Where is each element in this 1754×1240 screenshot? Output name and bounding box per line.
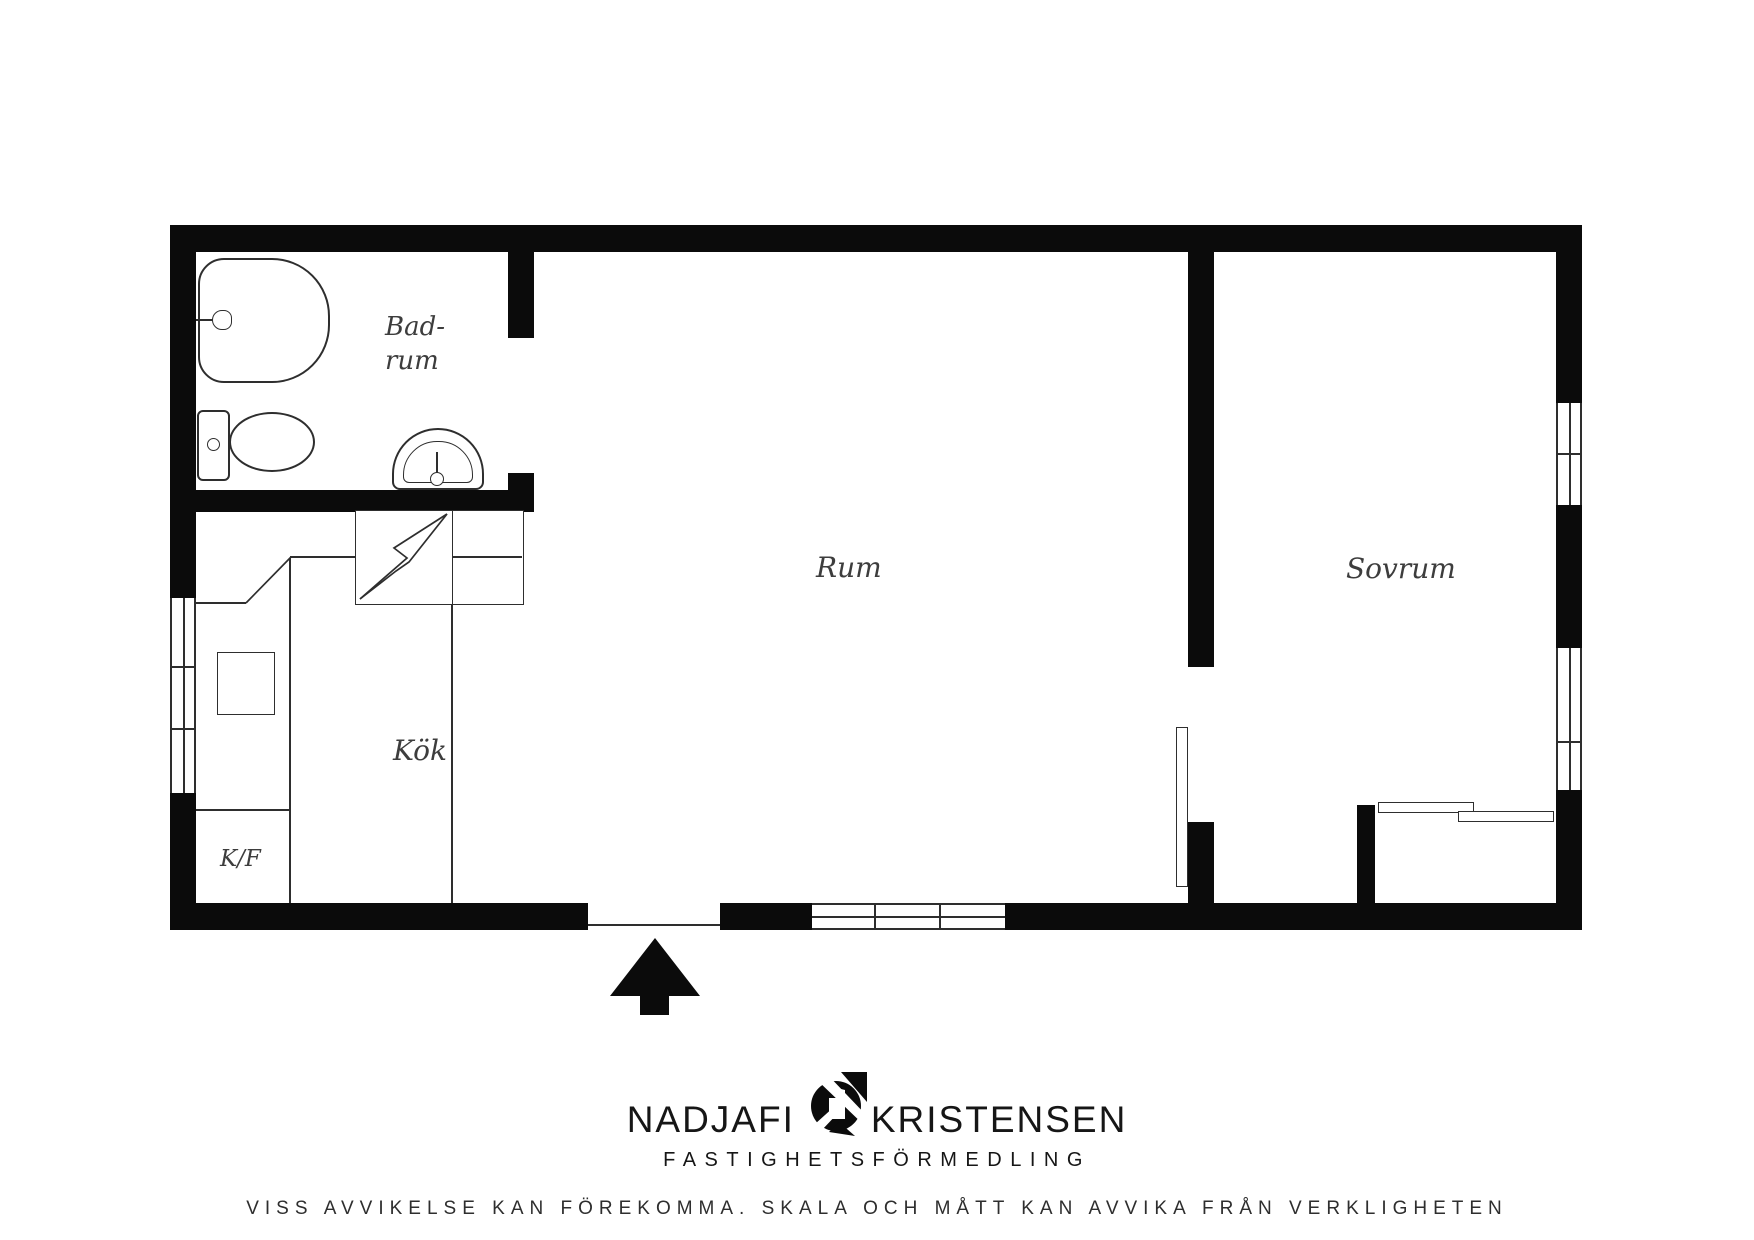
brand-name-first: NADJAFI <box>627 1101 795 1138</box>
wall-right-mid <box>1556 505 1582 648</box>
window-right-2 <box>1556 648 1582 790</box>
brand-name-second: KRISTENSEN <box>871 1101 1127 1138</box>
window-bottom <box>812 903 1005 930</box>
kitchen-sink <box>217 652 275 715</box>
floor-plan-page: Bad- rum Rum Sovrum Kök K/F NADJAFI KRIS… <box>0 0 1754 1240</box>
wardrobe-door-2 <box>1458 811 1554 822</box>
counter-corner-diagonal <box>243 554 293 606</box>
hall-cabinet <box>452 510 524 605</box>
room-label-bathroom-line1: Bad- <box>385 310 445 344</box>
brand-logo: NADJAFI KRISTENSEN <box>0 1070 1754 1138</box>
counter-front-left <box>289 558 291 903</box>
wall-bottom-mid <box>720 903 812 930</box>
wall-bedroom-divider-lower <box>1188 822 1214 903</box>
bathtub-faucet <box>212 310 232 330</box>
wall-top <box>170 225 1582 252</box>
entrance-arrow-icon <box>600 934 710 1020</box>
wall-left-upper <box>170 225 196 598</box>
toilet-bowl <box>229 412 315 472</box>
wall-bottom-right <box>1005 903 1582 930</box>
counter-edge-low <box>196 602 246 604</box>
room-label-bathroom-line2: rum <box>385 344 445 378</box>
bedroom-door-leaf <box>1176 727 1188 887</box>
kitchen-hall-divider <box>451 605 453 903</box>
window-right-1 <box>1556 403 1582 505</box>
lightning-bolt-icon <box>356 511 450 602</box>
room-label-kitchen: Kök <box>393 734 447 767</box>
wall-bathroom-right-upper <box>508 252 534 338</box>
fridge-freezer-divider <box>196 809 290 811</box>
wall-right-upper <box>1556 225 1582 403</box>
entrance-door-threshold <box>588 924 720 926</box>
wall-bathroom-bottom <box>170 490 534 512</box>
counter-front-top <box>290 556 356 558</box>
room-label-bedroom: Sovrum <box>1346 552 1456 585</box>
bathroom-sink-tap <box>430 472 444 486</box>
brand-subtitle: FASTIGHETSFÖRMEDLING <box>0 1149 1754 1172</box>
wall-bottom-left <box>170 903 588 930</box>
window-left <box>170 598 196 793</box>
wall-closet-stub <box>1357 805 1375 903</box>
stove <box>355 510 453 605</box>
room-label-bathroom: Bad- rum <box>385 310 445 378</box>
room-label-fridge-freezer: K/F <box>220 846 261 872</box>
wall-bedroom-divider-upper <box>1188 252 1214 667</box>
brand-logo-mark-icon <box>811 1072 867 1136</box>
disclaimer-text: VISS AVVIKELSE KAN FÖREKOMMA. SKALA OCH … <box>0 1198 1754 1220</box>
room-label-living: Rum <box>816 551 882 584</box>
toilet-flush-button <box>207 438 220 451</box>
